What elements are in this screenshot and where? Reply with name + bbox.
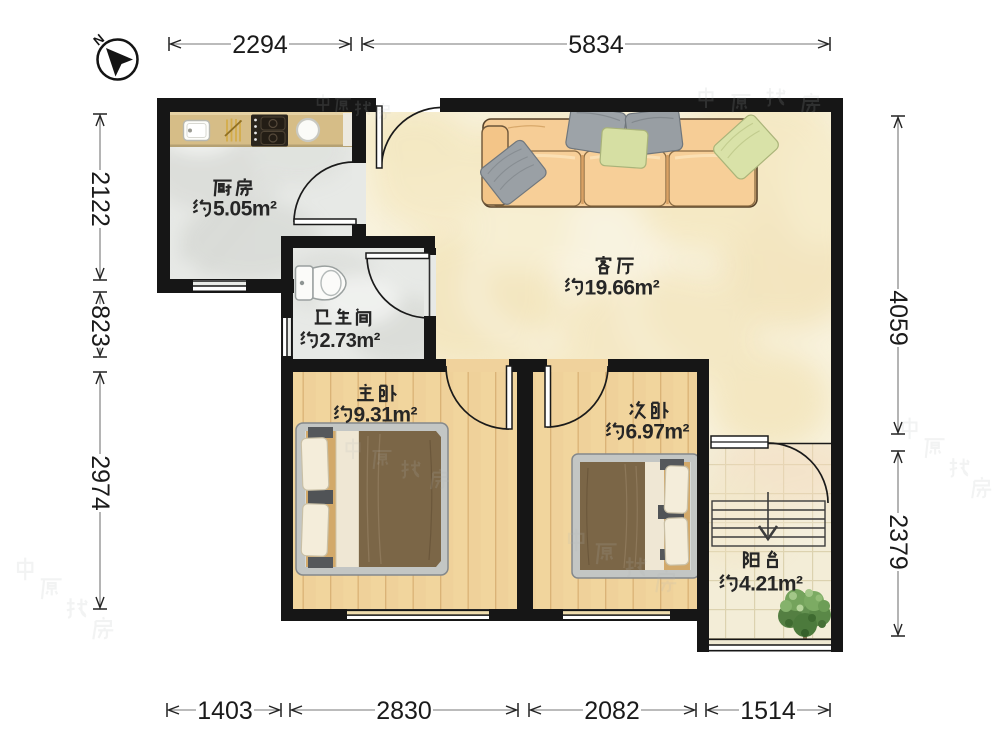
svg-text:6.97m²: 6.97m² [626,421,690,444]
svg-text:823: 823 [86,305,114,347]
svg-text:2122: 2122 [86,171,114,227]
svg-text:2379: 2379 [884,514,912,570]
svg-text:5.05m²: 5.05m² [213,198,277,221]
svg-text:4.21m²: 4.21m² [739,573,803,596]
svg-text:19.66m²: 19.66m² [585,277,660,300]
svg-text:9.31m²: 9.31m² [354,404,418,427]
svg-text:5834: 5834 [568,31,624,59]
svg-text:2974: 2974 [86,455,114,511]
svg-text:1514: 1514 [740,697,796,725]
svg-text:2294: 2294 [232,31,288,59]
svg-text:2.73m²: 2.73m² [320,330,381,352]
svg-text:1403: 1403 [197,697,253,725]
svg-text:2830: 2830 [376,697,432,725]
svg-text:4059: 4059 [884,290,912,346]
svg-text:2082: 2082 [584,697,640,725]
